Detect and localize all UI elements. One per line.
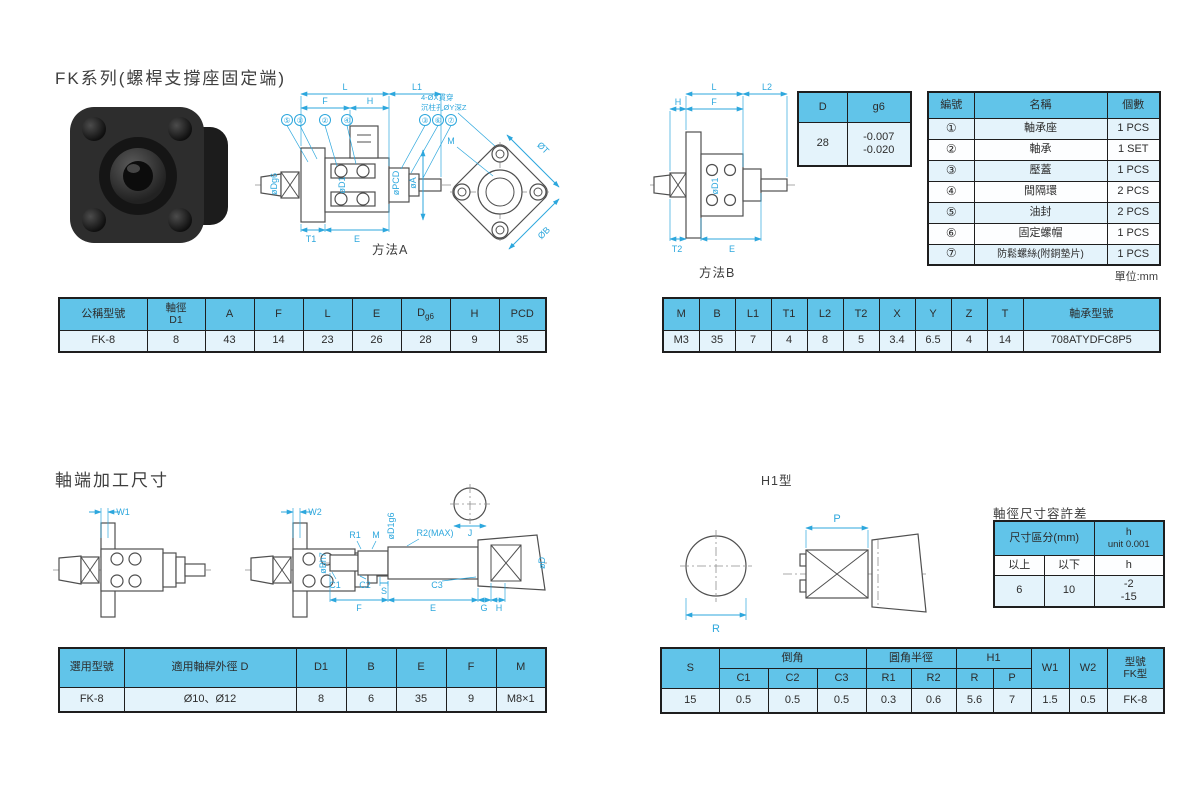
- svg-text:F: F: [711, 97, 717, 107]
- part-qty: 2 PCS: [1107, 202, 1160, 223]
- part-name: 軸承: [974, 139, 1107, 160]
- col-header-w1: W1: [1031, 648, 1069, 688]
- part-name: 防鬆螺絲(附銅墊片): [974, 244, 1107, 265]
- shaft-dia-line1: 軸徑: [148, 302, 205, 315]
- sub-header-over: 以上: [994, 555, 1044, 575]
- svg-text:R: R: [712, 623, 720, 635]
- svg-text:øD1: øD1: [710, 177, 720, 194]
- method-b-section: [650, 132, 798, 238]
- fit-value-d: 28: [798, 122, 847, 166]
- col-header-model: 公稱型號: [59, 298, 147, 330]
- svg-text:øBh7: øBh7: [318, 552, 328, 574]
- photo-screw: [82, 208, 106, 232]
- photo-screw: [168, 117, 192, 141]
- sub-header-r2: R2: [911, 668, 956, 688]
- part-qty: 1 PCS: [1107, 244, 1160, 265]
- cell-c1: 0.5: [719, 688, 768, 713]
- col-header: B: [699, 298, 735, 330]
- svg-text:øDg6: øDg6: [269, 173, 279, 195]
- unit-line1: h: [1095, 526, 1164, 539]
- cell-under: 10: [1044, 575, 1094, 607]
- cell-c2: 0.5: [768, 688, 817, 713]
- part-qty: 1 SET: [1107, 139, 1160, 160]
- dg6-main: D: [417, 307, 425, 319]
- svg-text:ØB: ØB: [536, 225, 552, 241]
- svg-text:M: M: [372, 530, 380, 540]
- svg-text:ØT: ØT: [535, 140, 551, 156]
- svg-text:øD1: øD1: [337, 176, 347, 193]
- cell-shaft-od: Ø10、Ø12: [124, 687, 296, 712]
- assembly-w1: W1: [53, 507, 211, 617]
- cell: 4: [951, 330, 987, 352]
- parts-header-qty: 個數: [1107, 92, 1160, 118]
- col-header-pcd: PCD: [499, 298, 546, 330]
- svg-text:øD1g6: øD1g6: [386, 512, 396, 539]
- col-header: T1: [771, 298, 807, 330]
- svg-text:T2: T2: [672, 244, 683, 254]
- cell-dg6: 28: [401, 330, 450, 352]
- table-row: ⑦ 防鬆螺絲(附銅墊片) 1 PCS: [928, 244, 1160, 265]
- part-qty: 1 PCS: [1107, 160, 1160, 181]
- part-name: 間隔環: [974, 181, 1107, 202]
- part-qty: 2 PCS: [1107, 181, 1160, 202]
- dim-table-a: 公稱型號 軸徑 D1 A F L E Dg6 H PCD FK-8 8 43 1…: [58, 297, 547, 353]
- cell-model: FK-8: [59, 330, 147, 352]
- col-header-h: H: [450, 298, 499, 330]
- sub-header-c2: C2: [768, 668, 817, 688]
- photo-screw: [168, 208, 192, 232]
- cell-f: 9: [446, 687, 496, 712]
- method-a-flange-view: M ØT ØB: [447, 135, 559, 249]
- part-no: ⑤: [928, 202, 974, 223]
- svg-text:E: E: [430, 603, 436, 613]
- cell-pcd: 35: [499, 330, 546, 352]
- fit-header-d: D: [798, 92, 847, 122]
- photo-flange: [70, 107, 204, 243]
- svg-text:T1: T1: [306, 234, 317, 244]
- tolerance-range-header: 尺寸區分(mm): [994, 521, 1094, 555]
- svg-text:øPCD: øPCD: [391, 170, 401, 195]
- svg-text:C3: C3: [431, 580, 443, 590]
- svg-text:F: F: [356, 603, 362, 613]
- table-row: M3 35 7 4 8 5 3.4 6.5 4 14 708ATYDFC8P5: [663, 330, 1160, 352]
- cell-h: 9: [450, 330, 499, 352]
- cell-over: 6: [994, 575, 1044, 607]
- cell-s: 15: [661, 688, 719, 713]
- col-header-s: S: [661, 648, 719, 688]
- group-header-radius: 圓角半徑: [866, 648, 956, 668]
- cell-e: 26: [352, 330, 401, 352]
- corner-table: S 倒角 圓角半徑 H1 W1 W2 型號 FK型 C1 C2 C3 R1 R2…: [660, 647, 1165, 714]
- col-header-w2: W2: [1069, 648, 1107, 688]
- cell: M3: [663, 330, 699, 352]
- cell-l: 23: [303, 330, 352, 352]
- col-header-m: M: [496, 648, 546, 687]
- group-header-chamfer: 倒角: [719, 648, 866, 668]
- col-header: M: [663, 298, 699, 330]
- cell-w1: 1.5: [1031, 688, 1069, 713]
- part-qty: 1 PCS: [1107, 223, 1160, 244]
- svg-text:E: E: [729, 244, 735, 254]
- method-a-drawing: L L1 F H ⑤ ① ② ④ ③ ⑥ ⑦ øDg6 øD1 øPCD: [253, 80, 603, 258]
- fit-header-g6: g6: [847, 92, 911, 122]
- h1-shaft-section: P: [783, 513, 926, 612]
- col-header-b: B: [346, 648, 396, 687]
- col-header: Z: [951, 298, 987, 330]
- sub-header-r: R: [956, 668, 993, 688]
- svg-text:L: L: [342, 82, 347, 92]
- fit-value-g6: -0.007 -0.020: [847, 122, 911, 166]
- svg-text:H: H: [496, 603, 503, 613]
- shaft-table: 選用型號 適用軸桿外徑 D D1 B E F M FK-8 Ø10、Ø12 8 …: [58, 647, 547, 713]
- sub-header-c3: C3: [817, 668, 866, 688]
- table-row: FK-8 8 43 14 23 26 28 9 35: [59, 330, 546, 352]
- col-header-l: L: [303, 298, 352, 330]
- cell-r1: 0.3: [866, 688, 911, 713]
- cell-m: M8×1: [496, 687, 546, 712]
- svg-text:H: H: [367, 96, 374, 106]
- col-header: X: [879, 298, 915, 330]
- h1-drawing: R P: [678, 488, 928, 648]
- part-no: ⑦: [928, 244, 974, 265]
- col-header-bearing-model: 軸承型號: [1023, 298, 1160, 330]
- dg6-sub: g6: [425, 312, 434, 321]
- photo-highlight: [127, 164, 140, 173]
- table-row: ⑥ 固定螺帽 1 PCS: [928, 223, 1160, 244]
- part-no: ④: [928, 181, 974, 202]
- part-no: ③: [928, 160, 974, 181]
- svg-text:H: H: [675, 97, 682, 107]
- method-a-caption: 方法A: [372, 239, 408, 258]
- tol-lower: -15: [1095, 591, 1164, 604]
- cell: 7: [735, 330, 771, 352]
- col-header: T2: [843, 298, 879, 330]
- col-header-f: F: [254, 298, 303, 330]
- tolerance-table: 尺寸區分(mm) h unit 0.001 以上 以下 h 6 10 -2 -1…: [993, 520, 1165, 608]
- cell-d1: 8: [147, 330, 205, 352]
- part-qty: 1 PCS: [1107, 118, 1160, 139]
- svg-text:L: L: [711, 82, 716, 92]
- table-row: 6 10 -2 -15: [994, 575, 1164, 607]
- fit-g6-lower: -0.020: [848, 144, 911, 157]
- svg-text:L1: L1: [412, 82, 422, 92]
- col-header-e: E: [396, 648, 446, 687]
- col-header-d1: D1: [296, 648, 346, 687]
- product-photo: [62, 103, 240, 253]
- h1-caption: H1型: [761, 470, 792, 489]
- svg-text:W1: W1: [116, 507, 130, 517]
- table-row: FK-8 Ø10、Ø12 8 6 35 9 M8×1: [59, 687, 546, 712]
- cell: 3.4: [879, 330, 915, 352]
- cell-r: 5.6: [956, 688, 993, 713]
- svg-text:G: G: [480, 603, 487, 613]
- col-header-shaft-dia: 軸徑 D1: [147, 298, 205, 330]
- svg-text:⑤: ⑤: [284, 116, 291, 125]
- sub-header-p: P: [993, 668, 1031, 688]
- col-header: Y: [915, 298, 951, 330]
- col-header: L1: [735, 298, 771, 330]
- svg-text:E: E: [354, 234, 360, 244]
- part-name: 固定螺帽: [974, 223, 1107, 244]
- parts-header-name: 名稱: [974, 92, 1107, 118]
- part-no: ②: [928, 139, 974, 160]
- method-a-section: [255, 126, 451, 222]
- svg-text:4-ØX貫穿: 4-ØX貫穿: [421, 92, 454, 102]
- cell-w2: 0.5: [1069, 688, 1107, 713]
- datasheet-page: FK系列(螺桿支撐座固定端) 軸端加工尺寸 單位:mm: [0, 0, 1200, 800]
- cell-d1: 8: [296, 687, 346, 712]
- cell-b: 6: [346, 687, 396, 712]
- cell: 5: [843, 330, 879, 352]
- cell: 14: [987, 330, 1023, 352]
- svg-text:L2: L2: [762, 82, 772, 92]
- col-header: L2: [807, 298, 843, 330]
- cell: 35: [699, 330, 735, 352]
- part-no: ①: [928, 118, 974, 139]
- col-header: T: [987, 298, 1023, 330]
- model-line2: FK型: [1108, 668, 1164, 681]
- method-b-drawing: L L2 H F øD1 T2 E: [648, 82, 803, 272]
- part-no: ⑥: [928, 223, 974, 244]
- svg-text:③: ③: [422, 116, 429, 125]
- method-b-caption: 方法B: [699, 262, 735, 281]
- svg-text:M: M: [447, 136, 455, 146]
- table-row: ④ 間隔環 2 PCS: [928, 181, 1160, 202]
- cell-f: 14: [254, 330, 303, 352]
- shaft-dia-line2: D1: [148, 314, 205, 327]
- group-header-h1: H1: [956, 648, 1031, 668]
- col-header-a: A: [205, 298, 254, 330]
- col-header-dg6: Dg6: [401, 298, 450, 330]
- fit-g6-upper: -0.007: [848, 131, 911, 144]
- svg-text:øA: øA: [408, 177, 418, 189]
- model-line1: 型號: [1108, 656, 1164, 669]
- table-row: 15 0.5 0.5 0.5 0.3 0.6 5.6 7 1.5 0.5 FK-…: [661, 688, 1164, 713]
- h1-round-section: R: [680, 530, 752, 635]
- table-row: ⑤ 油封 2 PCS: [928, 202, 1160, 223]
- sub-header-c1: C1: [719, 668, 768, 688]
- svg-text:⑥: ⑥: [435, 116, 442, 125]
- svg-text:⑦: ⑦: [448, 116, 455, 125]
- part-name: 壓蓋: [974, 160, 1107, 181]
- col-header-e: E: [352, 298, 401, 330]
- table-row: ② 軸承 1 SET: [928, 139, 1160, 160]
- cell-a: 43: [205, 330, 254, 352]
- svg-text:W2: W2: [308, 507, 322, 517]
- svg-text:R1: R1: [349, 530, 361, 540]
- part-name: 軸承座: [974, 118, 1107, 139]
- col-header-shaft-od: 適用軸桿外徑 D: [124, 648, 296, 687]
- cell: 6.5: [915, 330, 951, 352]
- fit-table: D g6 28 -0.007 -0.020: [797, 91, 912, 167]
- svg-text:P: P: [833, 513, 840, 525]
- svg-text:J: J: [468, 528, 473, 538]
- svg-text:沉柱孔ØY深Z: 沉柱孔ØY深Z: [421, 102, 467, 112]
- svg-text:④: ④: [344, 116, 351, 125]
- col-header-f: F: [446, 648, 496, 687]
- cell-bearing-model: 708ATYDFC8P5: [1023, 330, 1160, 352]
- parts-table: 編號 名稱 個數 ① 軸承座 1 PCS ② 軸承 1 SET ③ 壓蓋 1 P…: [927, 91, 1161, 266]
- cell-c3: 0.5: [817, 688, 866, 713]
- svg-text:②: ②: [322, 116, 329, 125]
- col-header-model: 型號 FK型: [1107, 648, 1164, 688]
- unit-line2: unit 0.001: [1095, 539, 1164, 550]
- tol-upper: -2: [1095, 578, 1164, 591]
- sub-header-h: h: [1094, 555, 1164, 575]
- dim-table-b: M B L1 T1 L2 T2 X Y Z T 軸承型號 M3 35 7 4 8…: [662, 297, 1161, 353]
- col-header-model: 選用型號: [59, 648, 124, 687]
- svg-text:S: S: [381, 586, 387, 596]
- table-row: ③ 壓蓋 1 PCS: [928, 160, 1160, 181]
- table-row: ① 軸承座 1 PCS: [928, 118, 1160, 139]
- svg-text:①: ①: [297, 116, 304, 125]
- tolerance-unit-header: h unit 0.001: [1094, 521, 1164, 555]
- cell: 4: [771, 330, 807, 352]
- svg-text:R2(MAX): R2(MAX): [416, 528, 453, 538]
- page-title: FK系列(螺桿支撐座固定端): [55, 64, 286, 89]
- photo-screw: [82, 117, 106, 141]
- cell: 8: [807, 330, 843, 352]
- cell-r2: 0.6: [911, 688, 956, 713]
- svg-text:C2: C2: [359, 580, 371, 590]
- part-name: 油封: [974, 202, 1107, 223]
- svg-text:øD: øD: [537, 557, 547, 569]
- sub-header-under: 以下: [1044, 555, 1094, 575]
- unit-label: 單位:mm: [1058, 268, 1158, 284]
- shaft-end-drawings: W1 W2 J øBh7 R1: [45, 478, 550, 633]
- cell-model: FK-8: [1107, 688, 1164, 713]
- cell-p: 7: [993, 688, 1031, 713]
- sub-header-r1: R1: [866, 668, 911, 688]
- parts-header-no: 編號: [928, 92, 974, 118]
- svg-text:F: F: [322, 96, 328, 106]
- cell-e: 35: [396, 687, 446, 712]
- cell-tolerance: -2 -15: [1094, 575, 1164, 607]
- svg-text:C1: C1: [329, 580, 341, 590]
- cell-model: FK-8: [59, 687, 124, 712]
